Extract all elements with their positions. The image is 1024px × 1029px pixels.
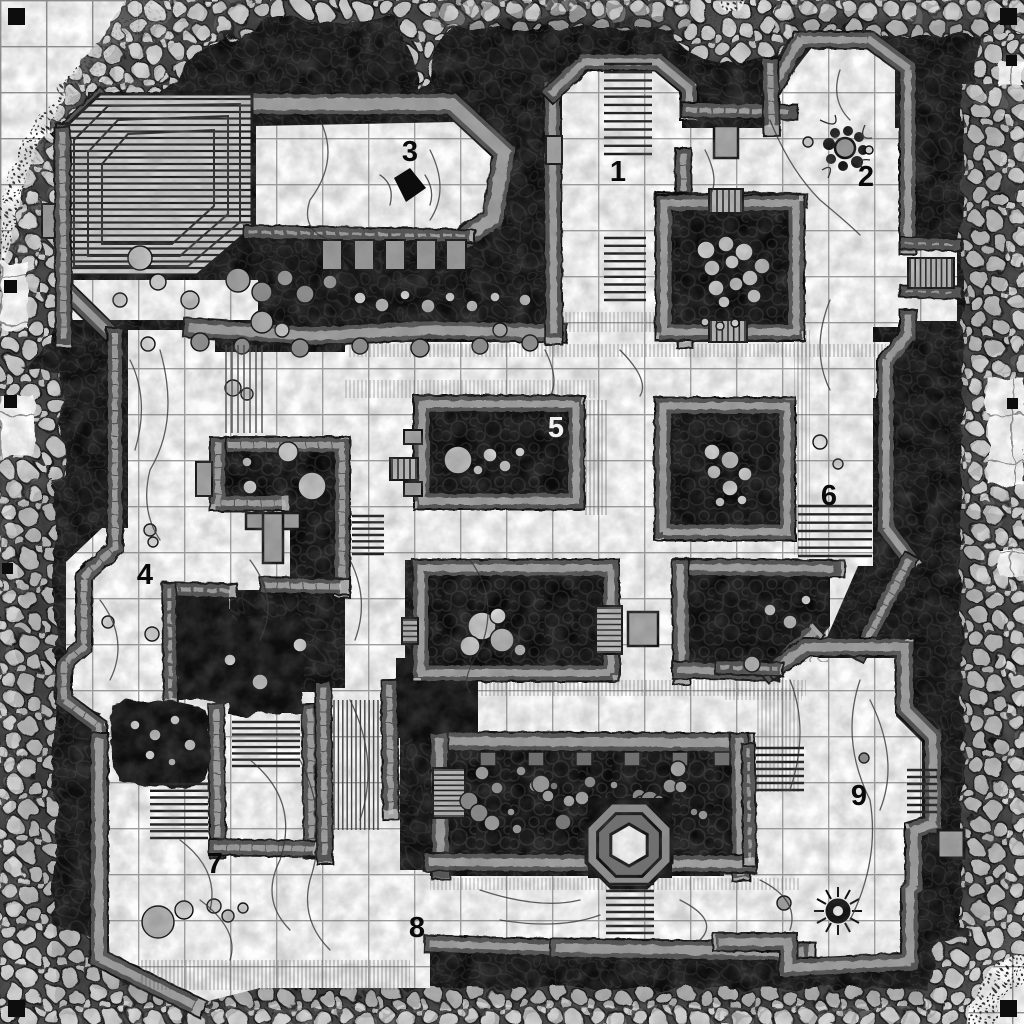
svg-text:5: 5 (548, 412, 564, 444)
svg-text:7: 7 (207, 848, 223, 880)
svg-text:8: 8 (409, 912, 425, 944)
svg-text:1: 1 (610, 156, 626, 188)
svg-text:4: 4 (137, 559, 153, 591)
svg-text:9: 9 (851, 780, 867, 812)
svg-text:3: 3 (402, 136, 418, 168)
svg-text:6: 6 (821, 480, 837, 512)
svg-text:2: 2 (858, 161, 874, 193)
